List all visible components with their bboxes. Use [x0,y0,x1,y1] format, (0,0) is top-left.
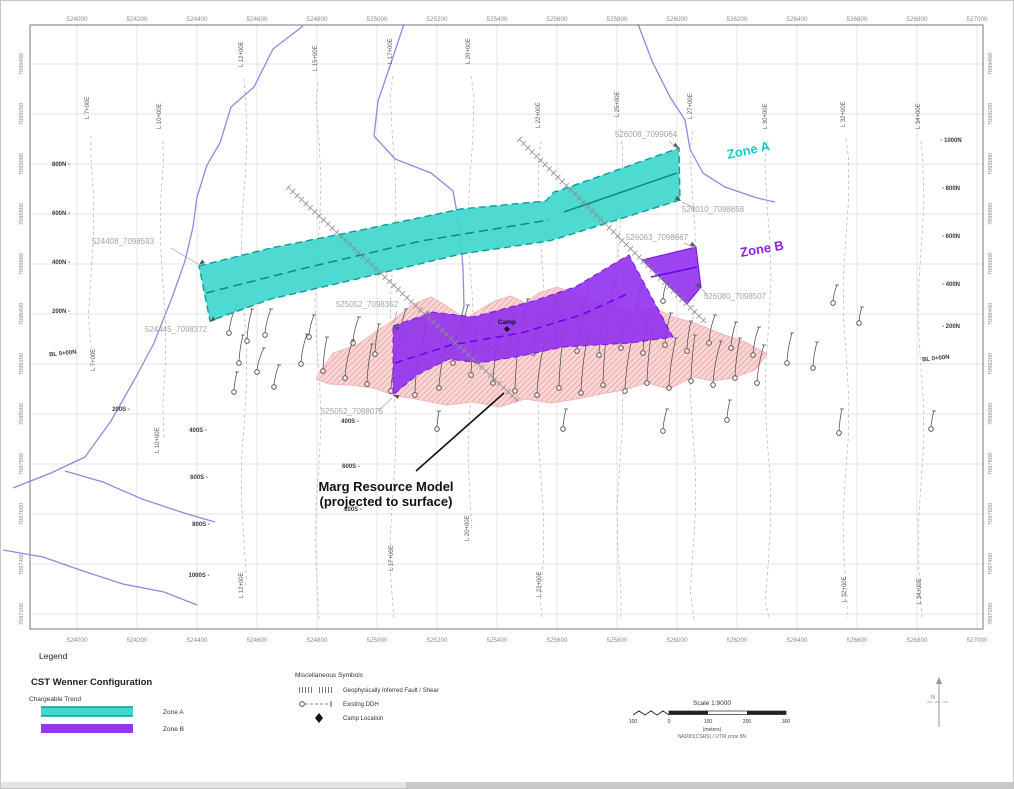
resource-model-label-line2: (projected to surface) [320,494,453,509]
svg-text:7099000: 7099000 [19,153,25,176]
station-label: 400S - [341,419,359,425]
svg-text:525400: 525400 [486,16,508,23]
svg-text:7097800: 7097800 [988,453,994,476]
ddh-symbol [255,348,266,374]
station-label: 400N - [52,260,70,266]
north-arrow-icon: N [927,677,951,727]
camp-symbol-label: Camp Location [343,716,383,722]
ddh-symbol [857,307,864,325]
survey-line-label: L 10+00E [157,103,163,129]
ddh-symbol [725,400,732,422]
camp-symbol-icon [315,713,323,723]
scale-tick-1: 0 [668,719,671,725]
station-label: - 600N [942,234,960,240]
survey-line-label: L 32+00E [842,576,848,602]
svg-text:526600: 526600 [846,637,868,644]
svg-text:526400: 526400 [786,16,808,23]
svg-text:7098400: 7098400 [19,303,25,326]
svg-text:7099200: 7099200 [988,103,994,126]
svg-text:526600: 526600 [846,16,868,23]
svg-text:524600: 524600 [246,16,268,23]
svg-text:526000: 526000 [666,16,688,23]
station-label: - 800N [942,186,960,192]
legend-title: Legend [39,651,68,661]
survey-line [468,76,474,531]
svg-text:524600: 524600 [246,637,268,644]
scale-tick-2: 100 [704,719,713,725]
survey-line-label: L 34+00E [916,103,922,129]
svg-text:526800: 526800 [906,637,928,644]
ddh-symbol [237,335,245,365]
svg-text:7099400: 7099400 [19,53,25,76]
coordinate-callout: 526010_7098858 [682,205,745,214]
svg-text:7098800: 7098800 [988,203,994,226]
svg-text:7097200: 7097200 [19,603,25,626]
svg-text:525600: 525600 [546,637,568,644]
svg-text:524400: 524400 [186,16,208,23]
scale-datum: NAD83(CSRS) / UTM zone 8N [678,734,747,740]
zone-b-label: Zone B [739,238,785,260]
survey-line-label: L 12+00E [239,41,245,67]
zone-a-swatch [41,707,133,716]
svg-text:N: N [931,695,935,701]
resource-model-label: Marg Resource Model (projected to surfac… [318,479,453,509]
svg-text:525400: 525400 [486,637,508,644]
svg-text:7099400: 7099400 [988,53,994,76]
svg-text:525000: 525000 [366,637,388,644]
coordinate-callout: 526008_7099064 [615,130,678,139]
ddh-symbol [351,317,361,345]
resource-model-label-line1: Marg Resource Model [318,479,453,494]
marg-plan-map: 5240005240005242005242005244005244005246… [1,1,1014,789]
svg-text:7098800: 7098800 [19,203,25,226]
survey-line-label: L 17+00E [389,545,395,571]
legend-section-title: CST Wenner Configuration [31,677,152,688]
zone-a-label: Zone A [726,138,772,162]
survey-line-label: L 20+00E [466,38,472,64]
ddh-symbol [232,372,239,394]
page-footer-strip [1,782,1013,788]
svg-text:524000: 524000 [66,16,88,23]
svg-text:7097600: 7097600 [988,503,994,526]
station-label: 600S - [342,464,360,470]
ddh-symbol [785,333,794,365]
svg-text:526800: 526800 [906,16,928,23]
scale-tick-3: 200 [743,719,752,725]
ddh-symbol [263,309,273,337]
svg-text:525200: 525200 [426,637,448,644]
survey-line-label: L 22+00E [536,102,542,128]
station-label: BL 0+00N [49,350,77,359]
coordinate-callout: 525052_7098352 [336,300,399,309]
svg-text:7097600: 7097600 [19,503,25,526]
svg-text:7098200: 7098200 [988,353,994,376]
survey-line-label: L 27+00E [688,93,694,119]
ddh-symbol [811,342,819,370]
survey-line [918,141,924,619]
ddh-symbol-label: Existing DDH [343,702,379,708]
svg-text:525000: 525000 [366,16,388,23]
station-label: 800N - [52,162,70,168]
scale-tick-4: 300 [782,719,791,725]
svg-text:7098000: 7098000 [988,403,994,426]
misc-symbols-title: Miscellaneous Symbols [295,672,364,679]
svg-text:524200: 524200 [126,16,148,23]
ddh-symbol-icon [300,701,331,707]
ddh-symbol [661,409,669,433]
survey-line-label: L 15+00E [313,45,319,71]
scale-title: Scale 1:9000 [693,700,731,707]
fault-symbol-label: Geophysically Inferred Fault / Shear [343,688,439,694]
ddh-symbol [272,365,281,389]
svg-text:7098600: 7098600 [988,253,994,276]
survey-line [88,136,93,356]
legend-subsection-title: Chargeable Trend [29,696,81,703]
svg-text:7098600: 7098600 [19,253,25,276]
ddh-symbol [837,409,844,435]
svg-text:7099000: 7099000 [988,153,994,176]
station-label: 200S - [112,407,130,413]
survey-line [160,141,165,439]
survey-line-label: L 22+00E [537,571,543,597]
svg-text:7098000: 7098000 [19,403,25,426]
ddh-symbol [831,285,839,305]
coordinate-callout: 526063_7098667 [626,233,689,242]
svg-text:525800: 525800 [606,16,628,23]
svg-text:524800: 524800 [306,16,328,23]
survey-line-label: L 7+00E [85,97,91,119]
survey-line [315,83,321,619]
svg-text:7097800: 7097800 [19,453,25,476]
legend: Legend CST Wenner Configuration Chargeab… [29,651,439,733]
station-label: 1000S - [188,573,209,579]
scale-bar: Scale 1:9000 100 0 100 200 300 (meters) … [629,700,791,740]
svg-text:527000: 527000 [966,637,988,644]
scale-zigzag [633,711,669,715]
survey-line-label: L 34+00E [917,578,923,604]
camp-text: Camp [498,319,516,326]
coordinate-callout: 526080_7098507 [704,292,767,301]
survey-line-label: L 30+00E [763,103,769,129]
station-label: 600S - [190,475,208,481]
svg-text:524000: 524000 [66,637,88,644]
svg-text:7097400: 7097400 [988,553,994,576]
svg-text:7099200: 7099200 [19,103,25,126]
svg-text:7097200: 7097200 [988,603,994,626]
svg-text:524200: 524200 [126,637,148,644]
survey-line-label: L 10+00E [155,427,161,453]
map-sheet: 5240005240005242005242005244005244005246… [0,0,1014,789]
survey-line [241,79,247,586]
ddh-symbol [561,409,568,431]
svg-text:526200: 526200 [726,637,748,644]
station-label: - 200N [942,324,960,330]
station-label: BL 0+00N [922,355,950,364]
coordinate-callout: 524408_7098593 [92,237,155,246]
station-label: 400S - [189,428,207,434]
survey-line-label: L 12+00E [239,572,245,598]
svg-text:525800: 525800 [606,637,628,644]
svg-text:7098200: 7098200 [19,353,25,376]
survey-line-label: L 7+00E [91,349,97,371]
svg-text:524800: 524800 [306,637,328,644]
svg-text:525200: 525200 [426,16,448,23]
svg-text:7098400: 7098400 [988,303,994,326]
resource-label-leader [416,393,504,471]
svg-text:527000: 527000 [966,16,988,23]
zone-a-swatch-label: Zone A [163,709,184,716]
svg-text:526400: 526400 [786,637,808,644]
svg-text:526000: 526000 [666,637,688,644]
svg-text:524400: 524400 [186,637,208,644]
svg-text:526200: 526200 [726,16,748,23]
station-label: - 400N [942,282,960,288]
survey-line [843,139,849,619]
svg-text:7097400: 7097400 [19,553,25,576]
scale-units: (meters) [703,727,722,733]
zone-b-swatch-label: Zone B [163,726,184,733]
svg-text:525600: 525600 [546,16,568,23]
station-label: - 1000N [940,138,961,144]
survey-line-label: L 17+00E [388,38,394,64]
ddh-symbol [307,315,316,339]
scale-tick-0: 100 [629,719,638,725]
survey-line-label: L 20+00E [465,515,471,541]
station-label: 600N - [52,211,70,217]
survey-line [765,141,771,619]
coordinate-callout: 525052_7098075 [321,407,384,416]
survey-line-label: L 32+00E [841,101,847,127]
survey-line-label: L 25+00E [615,91,621,117]
coordinate-callout: 524445_7098372 [145,325,208,334]
zone-b-swatch [41,724,133,733]
station-label: 800S - [192,522,210,528]
station-label: 200N - [52,309,70,315]
